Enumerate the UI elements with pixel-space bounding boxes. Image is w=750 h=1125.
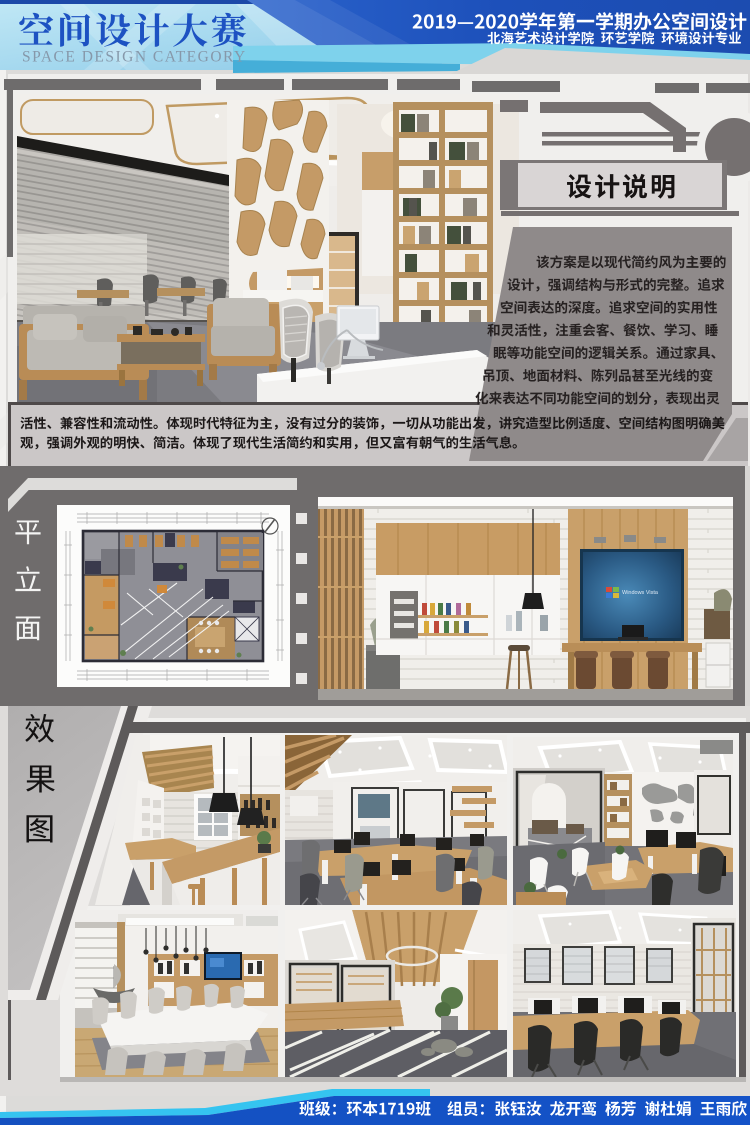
svg-text:SPACE DESIGN CATEGORY: SPACE DESIGN CATEGORY xyxy=(22,49,247,66)
svg-text:Windows Vista: Windows Vista xyxy=(622,590,659,596)
